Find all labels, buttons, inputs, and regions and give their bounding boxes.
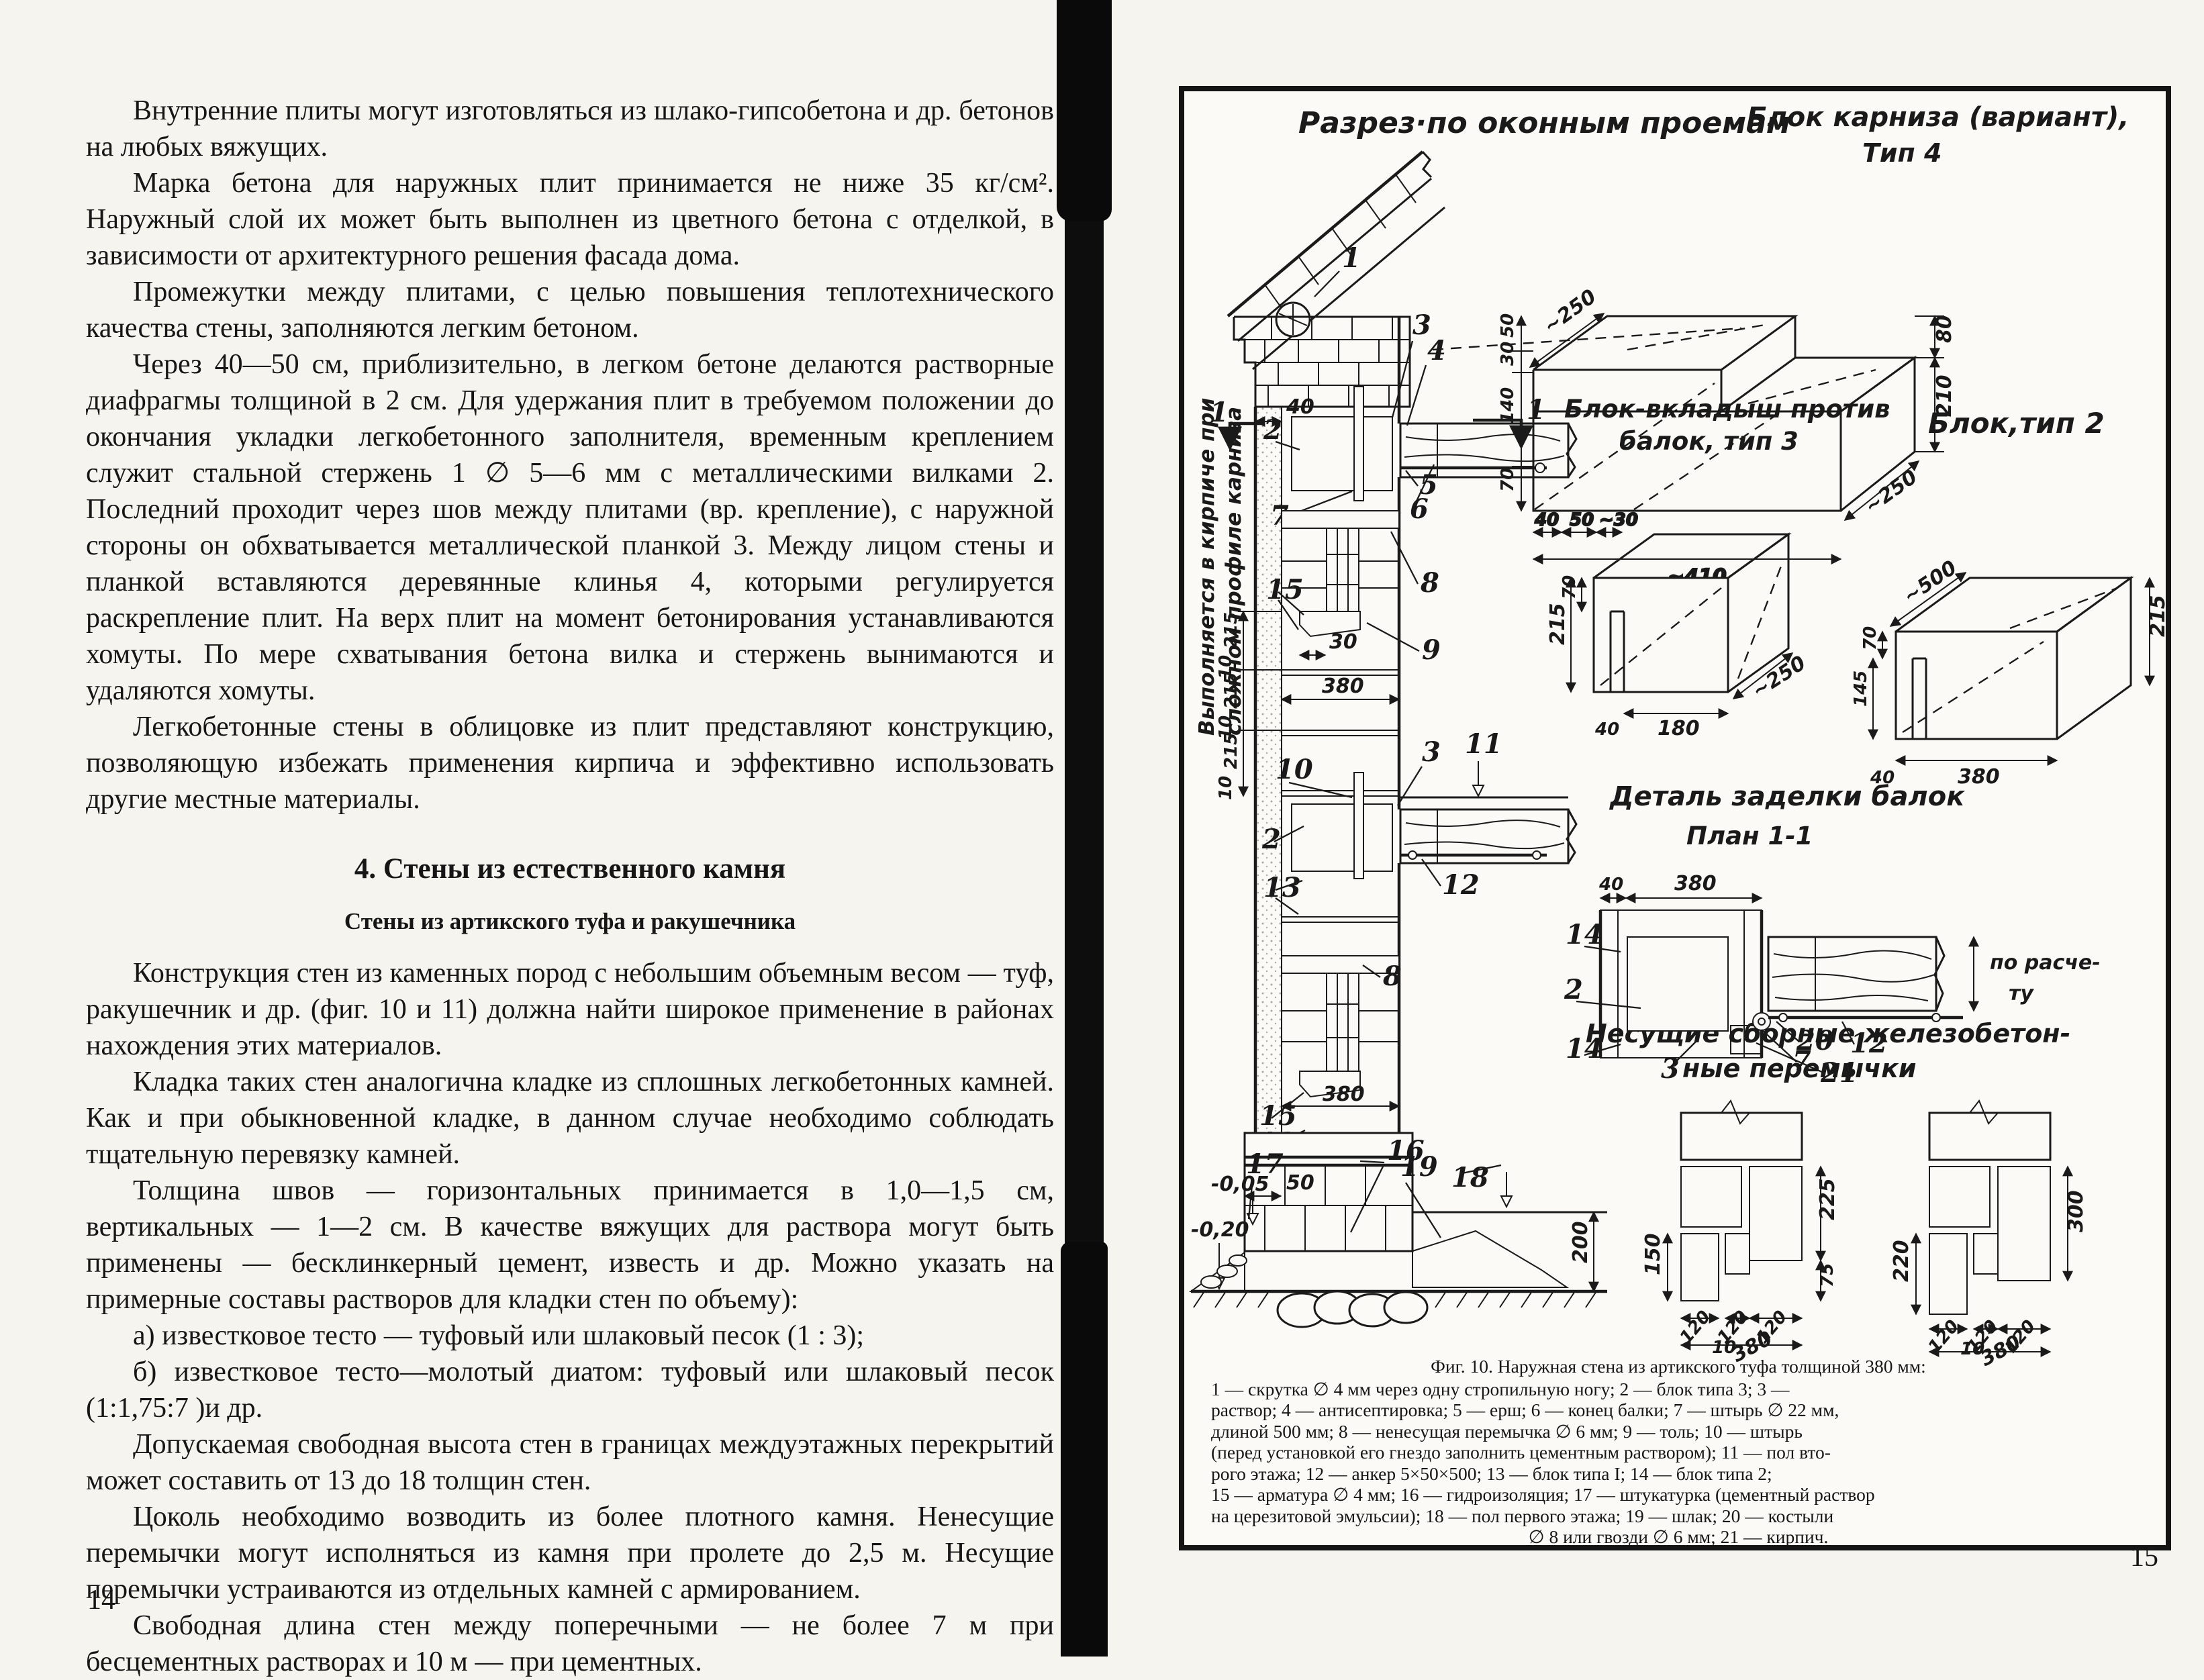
cornice-brickwork	[1234, 317, 1410, 407]
dim-label: 300	[2064, 1190, 2088, 1232]
dim-label: 120	[1925, 1316, 1964, 1357]
dim-label: 40	[1870, 768, 1895, 788]
paragraph: Промежутки между плитами, с целью повыше…	[86, 274, 1054, 346]
dim-label: 10	[1216, 776, 1236, 800]
callout-number: 3	[1661, 1053, 1680, 1085]
level-label: -0,05	[1211, 1173, 1269, 1196]
block-type3-type2-drawing: 70 215 ~250 180 40 ~500 215 70 145 380 4…	[1547, 457, 2164, 793]
callout-number: 11	[1465, 728, 1502, 760]
drawing-title-detail-2: План 1-1	[1686, 822, 1813, 850]
dim-label: 50	[1498, 313, 1518, 338]
dim-label: 145	[1851, 671, 1871, 707]
subsection-heading: Стены из артикского туфа и ракушечника	[86, 908, 1054, 935]
figure-frame: Разрез·по оконным проемам Блок карниза (…	[1179, 86, 2171, 1550]
callout-number: 9	[1422, 634, 1441, 666]
callout-number: 15	[1266, 574, 1304, 605]
dim-label: 30	[1498, 342, 1518, 366]
caption-line: 15 — арматура ∅ 4 мм; 16 — гидроизоляция…	[1211, 1484, 2146, 1505]
caption-line: раствор; 4 — антисептировка; 5 — ерш; 6 …	[1211, 1399, 2146, 1421]
dim-label: 75	[1817, 1263, 1837, 1287]
paragraph: Легкобетонные стены в облицовке из плит …	[86, 709, 1054, 818]
level-label: -0,20	[1191, 1218, 1249, 1242]
callout-number: 21	[1820, 1057, 1858, 1089]
block-type3	[1594, 534, 1788, 692]
callout-number: 8	[1420, 567, 1439, 599]
level-minus-020: -0,20	[1191, 1218, 1249, 1289]
caption-line: на церезитовой эмульсии); 18 — пол перво…	[1211, 1505, 2146, 1527]
callout-number: 14	[1566, 919, 1603, 950]
paragraph: Допускаемая свободная высота стен в гран…	[86, 1426, 1054, 1499]
book-binding-strip	[1065, 0, 1104, 1657]
dim-label: 215	[1221, 612, 1241, 648]
caption-line: Фиг. 10. Наружная стена из артикского ту…	[1211, 1356, 2146, 1377]
paragraph: Свободная длина стен между поперечными —…	[86, 1608, 1054, 1680]
dim-label: 70	[1560, 575, 1580, 599]
lintel-section-left: 150 225 75 120 120 120 10 380	[1641, 1101, 1839, 1367]
list-item-b: б) известковое тесто—молотый диатом: туф…	[86, 1354, 1054, 1426]
dim-label: 40	[1598, 875, 1623, 895]
dim-label: 215	[1221, 673, 1241, 709]
wall-plan-strip	[1600, 910, 1770, 1058]
paragraph: Конструкция стен из каменных пород с неб…	[86, 955, 1054, 1064]
dim-label: 50	[1286, 1171, 1314, 1195]
lintel-section-right: 220 300 120 120 120 10 380	[1890, 1101, 2088, 1371]
dim-label: 215	[2146, 595, 2170, 637]
dim-label: 40	[1594, 720, 1619, 740]
caption-line: 1 — скрутка ∅ 4 мм через одну стропильну…	[1211, 1379, 2146, 1400]
callout-number: 2	[1263, 414, 1282, 446]
callout-number: 8	[1382, 960, 1402, 992]
precast-lintels-drawing: 150 225 75 120 120 120 10 380 220 300	[1587, 1086, 2164, 1354]
dim-label: 140	[1498, 387, 1518, 424]
dim-label: 210	[1933, 375, 1956, 417]
dim-label: 80	[1933, 315, 1956, 343]
dim-label: ~250	[1539, 285, 1601, 338]
dim-label: 215	[1221, 733, 1241, 769]
level-mark	[1473, 761, 1484, 796]
page-number-right: 15	[2098, 1541, 2158, 1573]
callout-number: 12	[1850, 1028, 1888, 1059]
beam-plan	[1768, 937, 1974, 1022]
callout-number: 19	[1400, 1151, 1438, 1183]
note-label: по расче-	[1990, 951, 2101, 975]
beam-embedment-detail-drawing: 40 380 по расче- ту 14 2 14 3 20 7 21 12	[1560, 856, 2164, 1085]
callout-number: 10	[1276, 754, 1313, 785]
dim-label: 180	[1658, 717, 1700, 740]
callout-number: 14	[1566, 1033, 1603, 1065]
dim-label: 225	[1816, 1178, 1839, 1220]
dim-label: 380	[1322, 675, 1364, 698]
block-type2	[1896, 578, 2131, 739]
callout-number: 1	[1342, 242, 1361, 274]
dim-label: 120	[1676, 1307, 1715, 1348]
paragraph: Цоколь необходимо возводить из более пло…	[86, 1499, 1054, 1608]
dim-label: 70	[1860, 626, 1880, 650]
section-number: 1	[1210, 397, 1229, 428]
dim-label: 380	[1958, 765, 2000, 789]
paragraph: Толщина швов — горизонтальных принимаетс…	[86, 1173, 1054, 1318]
callout-number: 12	[1442, 869, 1480, 901]
callout-number: 2	[1564, 974, 1583, 1005]
caption-line: длиной 500 мм; 8 — ненесущая перемычка ∅…	[1211, 1421, 2146, 1442]
dim-label: 215	[1546, 603, 1570, 645]
callout-number: 18	[1451, 1162, 1489, 1193]
paragraph: Через 40—50 см, приблизительно, в легком…	[86, 346, 1054, 709]
caption-line: рого этажа; 12 — анкер 5×50×500; 13 — бл…	[1211, 1463, 2146, 1485]
callout-number: 3	[1422, 736, 1441, 768]
dim-label: 380	[1323, 1083, 1365, 1106]
interfloor-beam-zone	[1292, 773, 1576, 879]
dim-label: 40	[1286, 395, 1314, 419]
paragraph: Марка бетона для наружных плит принимает…	[86, 165, 1054, 274]
left-page-text-column: Внутренние плиты могут изготовляться из …	[86, 93, 1054, 1680]
window-2	[1282, 956, 1399, 1097]
list-item-a: а) известковое тесто — туфовый или шлако…	[86, 1318, 1054, 1354]
dim-label: 150	[1641, 1233, 1665, 1275]
dim-label: 380	[1674, 872, 1717, 895]
figure-caption: Фиг. 10. Наружная стена из артикского ту…	[1211, 1356, 2146, 1548]
paragraph: Внутренние плиты могут изготовляться из …	[86, 93, 1054, 165]
caption-line: (перед установкой его гнездо заполнить ц…	[1211, 1442, 2146, 1463]
right-dim-chain: 80 210	[1915, 315, 1956, 452]
section-heading: 4. Стены из естественного камня	[86, 852, 1054, 885]
note-label: ту	[2009, 982, 2034, 1005]
dim-label: ~250	[1748, 651, 1811, 703]
caption-line: ∅ 8 или гвозди ∅ 6 мм; 21 — кирпич.	[1211, 1526, 2146, 1548]
dim-label: 70	[1498, 468, 1518, 492]
drawing-title-cornice-1: Блок карниза (вариант),	[1747, 102, 2129, 133]
dim-label: 220	[1890, 1240, 1913, 1282]
dim-label: 30	[1329, 630, 1357, 654]
paragraph: Кладка таких стен аналогична кладке из с…	[86, 1064, 1054, 1173]
page-number-left: 14	[87, 1584, 115, 1616]
